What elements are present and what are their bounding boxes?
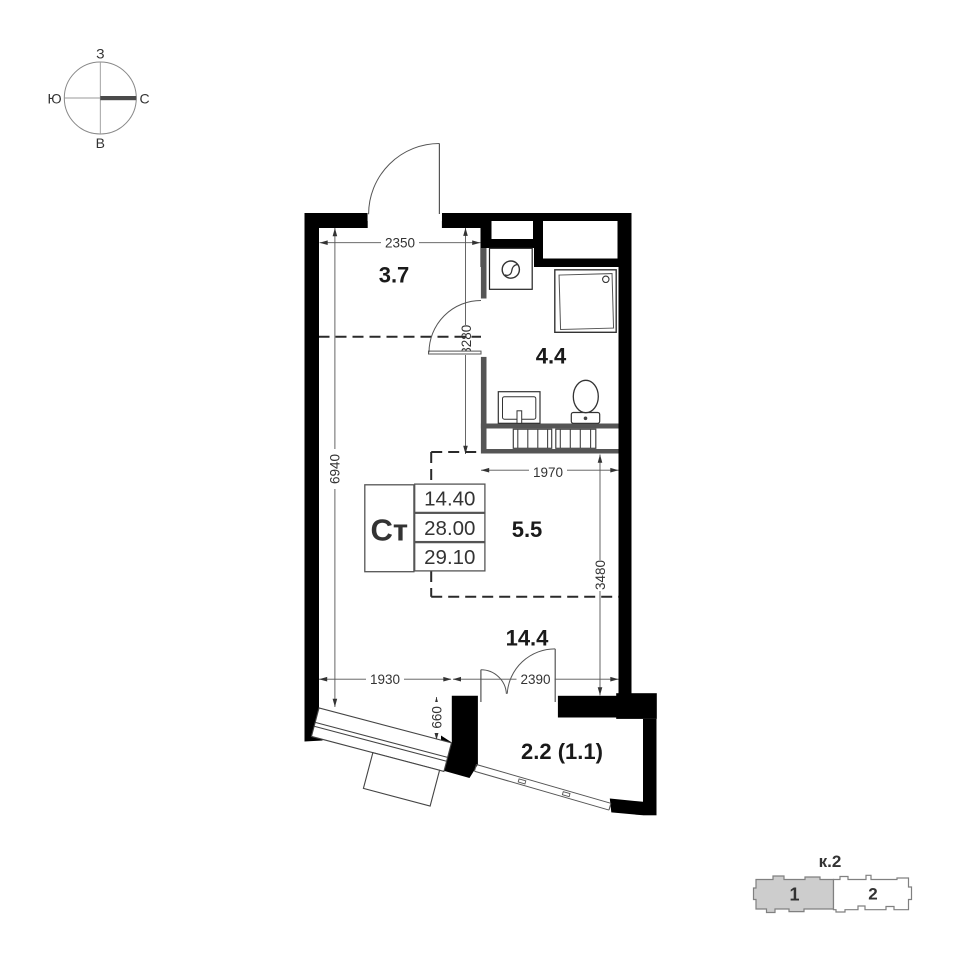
svg-text:14.4: 14.4 <box>506 626 550 651</box>
svg-text:14.40: 14.40 <box>424 488 475 511</box>
svg-text:3480: 3480 <box>593 560 608 590</box>
svg-text:2: 2 <box>868 885 877 904</box>
svg-text:Ст: Ст <box>371 513 409 548</box>
svg-text:к.2: к.2 <box>819 852 842 871</box>
svg-text:2390: 2390 <box>520 672 550 687</box>
svg-text:З: З <box>96 46 104 62</box>
svg-text:4.4: 4.4 <box>536 344 567 369</box>
svg-text:660: 660 <box>429 706 444 729</box>
svg-text:В: В <box>96 135 105 151</box>
svg-text:28.00: 28.00 <box>424 517 475 540</box>
svg-text:5.5: 5.5 <box>512 517 543 542</box>
svg-text:3.7: 3.7 <box>379 263 410 288</box>
svg-text:3280: 3280 <box>459 325 474 355</box>
svg-text:29.10: 29.10 <box>424 546 475 569</box>
svg-text:Ю: Ю <box>48 91 62 107</box>
svg-text:6940: 6940 <box>327 454 342 484</box>
svg-text:1930: 1930 <box>370 672 400 687</box>
svg-text:1: 1 <box>789 885 799 905</box>
svg-text:1970: 1970 <box>533 465 563 480</box>
svg-text:2350: 2350 <box>385 236 415 251</box>
svg-text:2.2 (1.1): 2.2 (1.1) <box>521 739 603 764</box>
svg-text:С: С <box>139 91 149 107</box>
